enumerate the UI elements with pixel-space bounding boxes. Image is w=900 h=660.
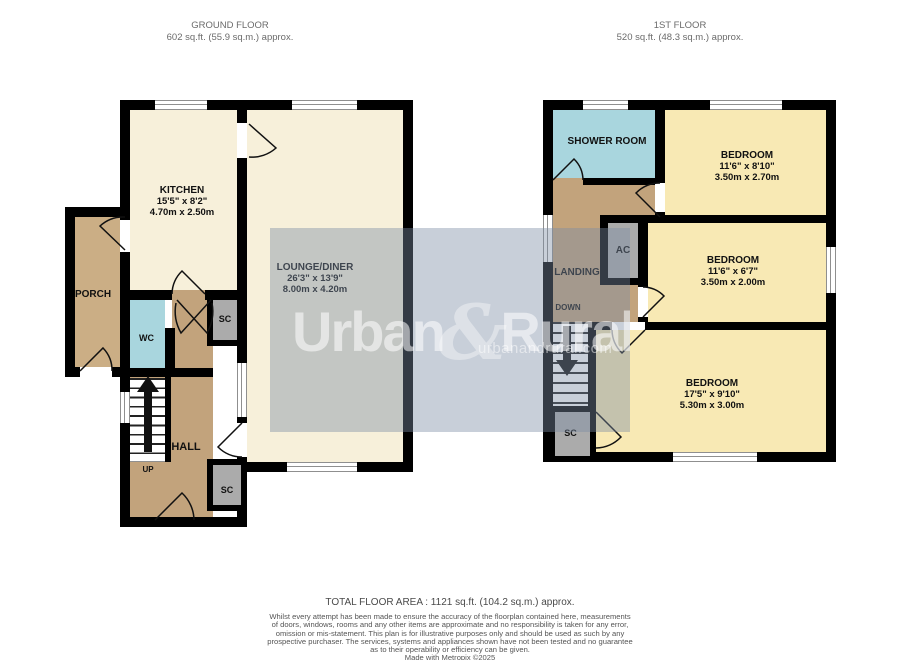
ground-floor-title: GROUND FLOOR [80, 20, 380, 32]
bedroom3-window [673, 452, 757, 462]
bedroom2-label: BEDROOM 11'6" x 6'7" 3.50m x 2.00m [663, 255, 803, 288]
up-label: UP [134, 465, 162, 474]
bedroom3-name: BEDROOM [642, 378, 782, 389]
sc-top-label: SC [213, 314, 237, 324]
ground-floor-header: GROUND FLOOR 602 sq.ft. (55.9 sq.m.) app… [80, 20, 380, 44]
watermark-ampersand: & [439, 288, 506, 377]
bedroom3-metric: 5.30m x 3.00m [642, 400, 782, 411]
total-floor-area: TOTAL FLOOR AREA : 1121 sq.ft. (104.2 sq… [0, 597, 900, 608]
watermark-overlay: Urban&Rural urbanandrural.com [270, 228, 630, 432]
bedroom1-name: BEDROOM [677, 150, 817, 161]
kitchen-window [155, 100, 207, 110]
shower-wall-bottom [583, 178, 655, 185]
bedroom2-imperial: 11'6" x 6'7" [663, 266, 803, 277]
kitchen-metric: 4.70m x 2.50m [112, 207, 252, 218]
bedroom1-bedroom2-wall [600, 215, 826, 223]
bedroom2-metric: 3.50m x 2.00m [663, 277, 803, 288]
kitchen-imperial: 15'5" x 8'2" [112, 196, 252, 207]
watermark-brand-left: Urban [292, 300, 444, 363]
wc-label: WC [128, 333, 165, 343]
gf-wall-hall-bottom [120, 517, 247, 527]
floorplan-page: GROUND FLOOR 602 sq.ft. (55.9 sq.m.) app… [0, 0, 900, 660]
bedroom2-window [826, 247, 836, 293]
bedroom3-label: BEDROOM 17'5" x 9'10" 5.30m x 3.00m [642, 378, 782, 411]
porch-label: PORCH [63, 289, 123, 300]
credit-line: Made with Metropix ©2025 [0, 654, 900, 660]
wc-wall-right [165, 328, 175, 377]
shower-window [583, 100, 628, 110]
kitchen-label: KITCHEN 15'5" x 8'2" 4.70m x 2.50m [112, 185, 252, 218]
first-floor-title: 1ST FLOOR [530, 20, 830, 32]
first-floor-header: 1ST FLOOR 520 sq.ft. (48.3 sq.m.) approx… [530, 20, 830, 44]
bedroom3-wall-top-b [645, 322, 826, 330]
sc-bottom-label: SC [213, 485, 241, 495]
bedroom1-label: BEDROOM 11'6" x 8'10" 3.50m x 2.70m [677, 150, 817, 183]
first-floor-area: 520 sq.ft. (48.3 sq.m.) approx. [530, 32, 830, 44]
lounge-window-bottom [287, 462, 357, 472]
disclaimer: Whilst every attempt has been made to en… [0, 613, 900, 660]
bedroom1-imperial: 11'6" x 8'10" [677, 161, 817, 172]
bedroom2-name: BEDROOM [663, 255, 803, 266]
bedroom1-window [710, 100, 782, 110]
hall-label: HALL [156, 441, 216, 453]
bedroom2-wall-left-a [638, 223, 648, 287]
kitchen-name: KITCHEN [112, 185, 252, 196]
ground-floor-area: 602 sq.ft. (55.9 sq.m.) approx. [80, 32, 380, 44]
bedroom1-metric: 3.50m x 2.70m [677, 172, 817, 183]
shower-room-label: SHOWER ROOM [547, 136, 667, 147]
bedroom3-imperial: 17'5" x 9'10" [642, 389, 782, 400]
kitchen-lounge-wall-a [237, 110, 247, 123]
lounge-window-top [292, 100, 357, 110]
watermark-site: urbanandrural.com [478, 340, 612, 357]
recess-void [213, 346, 237, 459]
internal-window [237, 363, 247, 417]
kitchen-wall-bottom-a [120, 290, 172, 300]
porch-wall-bottom-a [65, 367, 80, 377]
lounge-wall-c [237, 417, 247, 423]
hall-window [120, 392, 130, 423]
